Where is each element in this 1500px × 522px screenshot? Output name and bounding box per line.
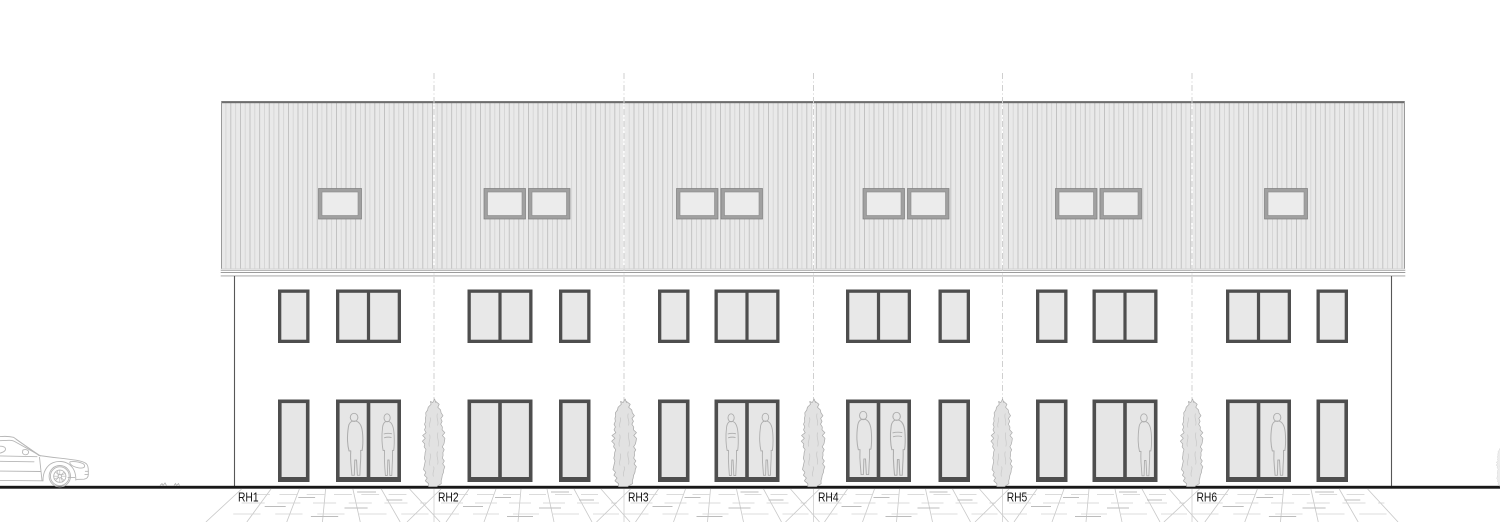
svg-text:RH5: RH5 [1007,490,1028,505]
svg-text:RH3: RH3 [628,490,649,505]
svg-text:RH4: RH4 [818,490,839,505]
svg-text:RH1: RH1 [238,490,259,505]
svg-text:RH6: RH6 [1197,490,1218,505]
svg-text:RH2: RH2 [438,490,459,505]
